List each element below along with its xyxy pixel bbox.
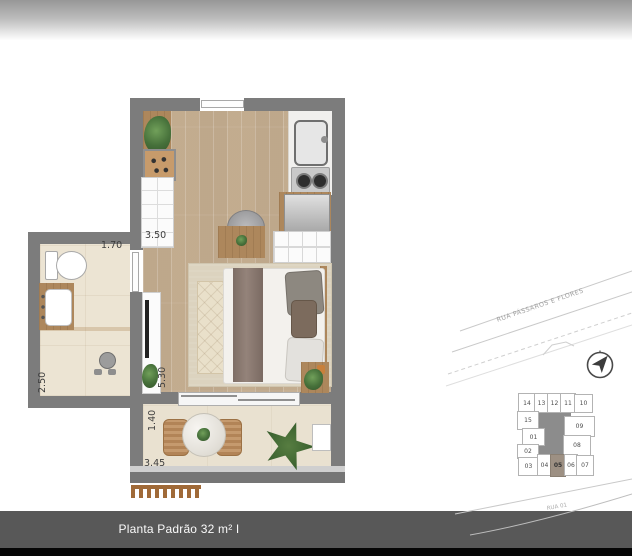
wall-right [331, 98, 345, 474]
balcony-railing [130, 472, 345, 483]
entrance-door [201, 100, 244, 108]
toilet-bowl [56, 251, 87, 280]
sliding-door-panel-right [238, 399, 295, 401]
shower-handle-right [108, 369, 116, 375]
shower-head [99, 352, 116, 369]
nightstand-plant [304, 369, 323, 390]
stove-burner-right [312, 173, 328, 189]
deck-trellis-teeth [131, 489, 201, 498]
door-stub-right [298, 392, 331, 404]
tv [145, 300, 149, 358]
dim-balcony-depth: 1.40 [147, 410, 158, 431]
bathroom-wall-top [28, 232, 143, 244]
stove-burner-left [296, 173, 312, 189]
balcony-unit [312, 424, 331, 451]
bed-bench [197, 281, 225, 374]
dim-bathroom-width: 1.70 [101, 240, 122, 251]
dim-living-length: 5.30 [157, 367, 168, 388]
table-plant [197, 428, 210, 441]
fridge [284, 194, 330, 234]
plan-title: Planta Padrão 32 m² I Studio [103, 511, 255, 548]
entry-plant [144, 116, 171, 153]
page: 3.50 1.70 2.50 5.30 1.40 3.45 Planta Pad… [0, 0, 632, 556]
dim-balcony-width: 3.45 [144, 458, 165, 469]
shower-handle-left [94, 369, 102, 375]
kitchen-sink [294, 120, 328, 166]
footer-bar: Planta Padrão 32 m² I Studio [0, 511, 632, 548]
sliding-door-panel-left [181, 395, 237, 397]
bed-cushion [291, 300, 317, 338]
kitchen-faucet [321, 136, 328, 143]
desk-plant [236, 235, 247, 246]
bottom-black-strip [0, 548, 632, 556]
vanity-faucet-dots [41, 294, 45, 320]
wardrobe [273, 231, 331, 263]
floor-plan: 3.50 1.70 2.50 5.30 1.40 3.45 [0, 0, 632, 556]
bathroom-wall-bottom [28, 396, 143, 408]
vanity-sink [45, 289, 72, 326]
console-plant [142, 364, 158, 388]
dim-shelf: 3.50 [145, 230, 166, 241]
dim-bathroom-length: 2.50 [37, 372, 48, 393]
bed-blanket [233, 268, 263, 382]
bathroom-door [132, 252, 139, 292]
